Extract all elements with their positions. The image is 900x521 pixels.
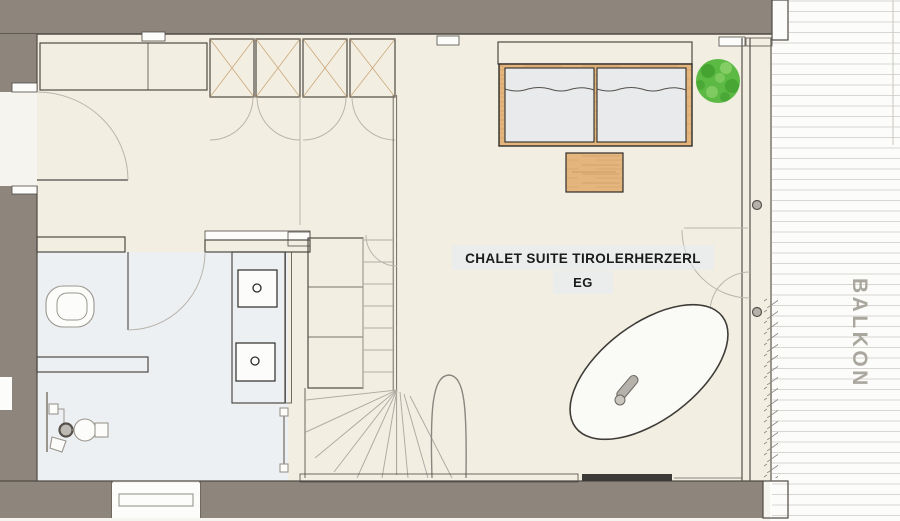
bottom-wall-right [200, 481, 763, 518]
top-wall [0, 0, 772, 34]
shower-bracket [49, 404, 58, 414]
railing-hatch [764, 298, 778, 478]
shower-control-box [95, 423, 108, 437]
suite-title: CHALET SUITE TIROLERHERZERL [465, 251, 701, 266]
balcony-deck-planks-top [789, 0, 900, 38]
floorplan-page: BALKON [0, 0, 900, 521]
low-window-dark-bar [582, 474, 672, 481]
shower-dial [74, 419, 96, 441]
entry-door-jamb-bottom [12, 186, 37, 194]
wall-marker-3 [719, 37, 745, 46]
sink-2-drain [251, 357, 259, 365]
toilet [46, 286, 94, 327]
entry-door-jamb-top [12, 83, 37, 92]
bathtub-faucet-base [615, 395, 625, 405]
wall-marker-1 [142, 32, 165, 41]
wall-marker-2 [437, 36, 459, 45]
floorplan-drawing: BALKON [0, 0, 900, 521]
door-handle-2 [753, 308, 762, 317]
left-wall-window-notch [0, 377, 12, 410]
mattress-right [597, 68, 686, 142]
shower-head [60, 424, 73, 437]
mattress-left [505, 68, 594, 142]
floor-label: EG [573, 275, 593, 290]
balcony-deck-planks [772, 36, 900, 521]
coffee-table [566, 153, 623, 192]
door-handle-1 [753, 201, 762, 210]
sink-1-drain [253, 284, 261, 292]
balcony-label: BALKON [848, 278, 871, 389]
bottom-wall-left [0, 481, 112, 518]
balcony-area: BALKON [770, 0, 900, 521]
left-wall-lower [0, 186, 37, 481]
bath-window-frame [119, 494, 193, 506]
